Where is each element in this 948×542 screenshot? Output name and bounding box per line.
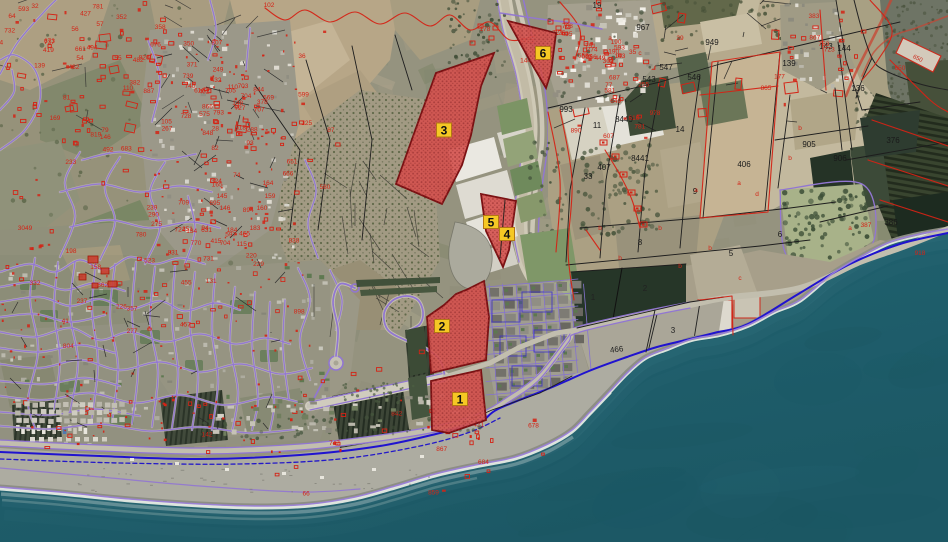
svg-text:29: 29 (676, 35, 684, 42)
svg-text:831: 831 (168, 250, 179, 257)
svg-text:35: 35 (629, 49, 637, 56)
svg-text:a: a (608, 35, 612, 42)
svg-text:599: 599 (298, 92, 309, 99)
svg-text:b: b (598, 225, 602, 232)
svg-text:55: 55 (114, 55, 122, 62)
svg-text:b: b (788, 155, 792, 162)
svg-text:324: 324 (211, 178, 222, 185)
svg-text:178: 178 (480, 26, 491, 33)
svg-text:28: 28 (212, 125, 220, 132)
svg-text:1: 1 (591, 293, 596, 302)
svg-text:36: 36 (298, 53, 306, 60)
svg-text:575: 575 (199, 111, 210, 118)
svg-text:229: 229 (253, 261, 264, 268)
svg-text:b: b (708, 245, 712, 252)
svg-text:739: 739 (183, 73, 194, 80)
svg-text:198: 198 (66, 248, 77, 255)
svg-text:898: 898 (294, 308, 305, 315)
svg-text:146: 146 (100, 134, 111, 141)
svg-text:b: b (618, 255, 622, 262)
svg-text:b: b (798, 125, 802, 132)
svg-text:727: 727 (235, 105, 246, 112)
svg-text:644: 644 (0, 40, 4, 47)
svg-text:4: 4 (504, 228, 511, 242)
svg-text:593: 593 (18, 6, 29, 13)
svg-text:145: 145 (217, 193, 228, 200)
svg-text:8441: 8441 (631, 154, 649, 163)
svg-text:666: 666 (283, 170, 294, 177)
svg-text:290: 290 (148, 212, 159, 219)
svg-text:5: 5 (488, 216, 495, 230)
svg-text:87: 87 (327, 127, 335, 134)
svg-text:523: 523 (144, 258, 155, 265)
svg-text:684: 684 (478, 459, 489, 466)
svg-text:32: 32 (31, 3, 39, 10)
svg-text:457: 457 (180, 322, 191, 329)
svg-text:139: 139 (34, 63, 45, 70)
svg-text:3049: 3049 (18, 225, 33, 232)
svg-text:190: 190 (611, 39, 622, 46)
svg-text:136: 136 (851, 84, 865, 93)
svg-text:352: 352 (116, 14, 127, 21)
svg-text:466: 466 (609, 344, 624, 355)
svg-text:569: 569 (263, 94, 274, 101)
svg-text:5: 5 (729, 249, 734, 258)
svg-text:547: 547 (659, 63, 673, 72)
svg-text:427: 427 (80, 10, 91, 17)
svg-text:387: 387 (861, 222, 872, 229)
svg-text:164: 164 (263, 180, 274, 187)
svg-text:859: 859 (428, 490, 439, 497)
svg-text:6: 6 (540, 47, 547, 61)
svg-text:177: 177 (774, 74, 785, 81)
svg-text:275: 275 (151, 221, 162, 228)
svg-text:2: 2 (643, 284, 648, 293)
svg-text:723: 723 (824, 47, 835, 54)
svg-text:57: 57 (96, 21, 104, 28)
svg-text:867: 867 (436, 446, 447, 453)
svg-text:651: 651 (287, 159, 298, 166)
svg-text:220: 220 (246, 252, 257, 259)
svg-text:2: 2 (439, 320, 446, 334)
svg-text:780: 780 (136, 232, 147, 239)
svg-text:492: 492 (103, 147, 114, 154)
svg-text:793: 793 (213, 109, 224, 116)
svg-text:494: 494 (87, 45, 98, 52)
svg-text:233: 233 (65, 159, 76, 166)
svg-text:158: 158 (90, 264, 101, 271)
svg-text:482: 482 (68, 64, 79, 71)
svg-text:358: 358 (155, 24, 166, 31)
svg-text:662: 662 (97, 282, 108, 289)
svg-text:267: 267 (162, 126, 173, 133)
svg-text:705: 705 (225, 88, 236, 95)
svg-text:807: 807 (211, 40, 222, 47)
svg-text:804: 804 (63, 343, 74, 350)
svg-text:649: 649 (610, 98, 621, 105)
svg-text:64: 64 (8, 13, 16, 20)
svg-text:3: 3 (441, 124, 448, 138)
svg-text:6: 6 (778, 230, 783, 239)
svg-text:288: 288 (247, 127, 258, 134)
svg-text:237: 237 (77, 298, 88, 305)
svg-text:449: 449 (595, 55, 606, 62)
svg-text:115: 115 (237, 241, 248, 248)
svg-text:82: 82 (211, 145, 219, 152)
svg-text:131: 131 (206, 278, 217, 285)
svg-text:226: 226 (116, 304, 127, 311)
svg-text:b: b (658, 225, 662, 232)
svg-text:687: 687 (609, 75, 620, 82)
svg-text:239: 239 (147, 205, 158, 212)
svg-text:455: 455 (181, 279, 192, 286)
svg-text:905: 905 (802, 140, 816, 149)
svg-text:8: 8 (638, 238, 643, 247)
svg-text:887: 887 (143, 88, 154, 95)
svg-text:159: 159 (265, 193, 276, 200)
svg-text:79: 79 (101, 127, 109, 134)
svg-text:867: 867 (809, 35, 820, 42)
svg-text:74: 74 (233, 172, 241, 179)
svg-text:139: 139 (782, 59, 796, 68)
svg-text:678: 678 (528, 423, 539, 430)
svg-text:a: a (694, 187, 698, 194)
svg-text:134: 134 (186, 228, 197, 235)
svg-text:661: 661 (75, 46, 86, 53)
svg-text:610: 610 (628, 115, 639, 122)
svg-text:183: 183 (250, 225, 261, 232)
svg-text:b: b (678, 263, 682, 270)
svg-text:a: a (737, 180, 741, 187)
svg-text:1: 1 (457, 393, 464, 407)
svg-text:781: 781 (92, 4, 103, 11)
svg-text:650: 650 (895, 65, 906, 72)
svg-text:770: 770 (191, 240, 202, 247)
svg-text:676: 676 (150, 42, 161, 49)
svg-text:918: 918 (915, 250, 926, 257)
svg-text:419: 419 (43, 47, 54, 54)
svg-text:11: 11 (593, 121, 602, 130)
svg-text:41: 41 (62, 318, 70, 325)
svg-text:704: 704 (220, 240, 231, 247)
svg-text:3: 3 (671, 326, 676, 335)
svg-text:407: 407 (597, 163, 611, 172)
svg-text:728: 728 (181, 113, 192, 120)
svg-text:406: 406 (737, 160, 751, 169)
svg-text:546: 546 (687, 73, 701, 82)
svg-text:a: a (848, 225, 852, 232)
svg-text:607: 607 (603, 133, 614, 140)
svg-text:184: 184 (227, 227, 238, 234)
svg-text:781: 781 (634, 123, 645, 130)
svg-text:993: 993 (559, 105, 573, 114)
svg-text:683: 683 (121, 145, 132, 152)
svg-text:274: 274 (587, 47, 598, 54)
svg-text:866: 866 (202, 104, 213, 111)
svg-text:383: 383 (808, 13, 819, 20)
svg-text:54: 54 (76, 55, 84, 62)
svg-text:332: 332 (30, 280, 41, 287)
svg-text:838: 838 (289, 237, 300, 244)
svg-text:967: 967 (636, 23, 650, 32)
svg-text:56: 56 (71, 26, 79, 33)
svg-text:740: 740 (185, 83, 196, 90)
svg-text:709: 709 (178, 200, 189, 207)
svg-text:143: 143 (615, 53, 626, 60)
svg-text:376: 376 (886, 136, 900, 145)
svg-text:81: 81 (63, 95, 71, 102)
svg-text:277: 277 (127, 328, 138, 335)
svg-text:350: 350 (183, 40, 194, 47)
svg-text:731: 731 (203, 255, 214, 262)
svg-text:94: 94 (201, 225, 209, 232)
svg-text:890: 890 (571, 128, 582, 135)
svg-text:255: 255 (638, 81, 649, 88)
svg-text:844: 844 (253, 86, 264, 93)
svg-text:33: 33 (584, 172, 593, 181)
svg-text:581: 581 (604, 88, 615, 95)
svg-text:894: 894 (243, 207, 254, 214)
svg-text:737: 737 (44, 39, 55, 46)
svg-text:580: 580 (320, 184, 331, 191)
svg-text:371: 371 (187, 61, 198, 68)
svg-text:169: 169 (50, 115, 61, 122)
svg-text:14: 14 (676, 125, 685, 134)
svg-text:357: 357 (127, 306, 138, 313)
svg-text:160: 160 (257, 205, 268, 212)
svg-text:704: 704 (241, 93, 252, 100)
svg-text:386: 386 (884, 218, 898, 227)
svg-text:102: 102 (264, 2, 275, 9)
svg-text:110: 110 (123, 85, 134, 92)
svg-text:66: 66 (302, 491, 310, 498)
svg-text:249: 249 (213, 67, 224, 74)
svg-text:218: 218 (235, 125, 246, 132)
svg-text:819: 819 (90, 132, 101, 139)
svg-text:949: 949 (705, 38, 719, 47)
svg-text:105: 105 (161, 119, 172, 126)
svg-text:146: 146 (220, 205, 231, 212)
svg-text:906: 906 (833, 154, 847, 163)
svg-text:865: 865 (761, 85, 772, 92)
svg-text:732: 732 (4, 27, 15, 34)
svg-text:93: 93 (246, 140, 254, 147)
svg-text:d: d (755, 191, 759, 198)
svg-text:144: 144 (837, 44, 851, 53)
svg-text:978: 978 (650, 110, 661, 117)
svg-text:142: 142 (202, 432, 213, 439)
